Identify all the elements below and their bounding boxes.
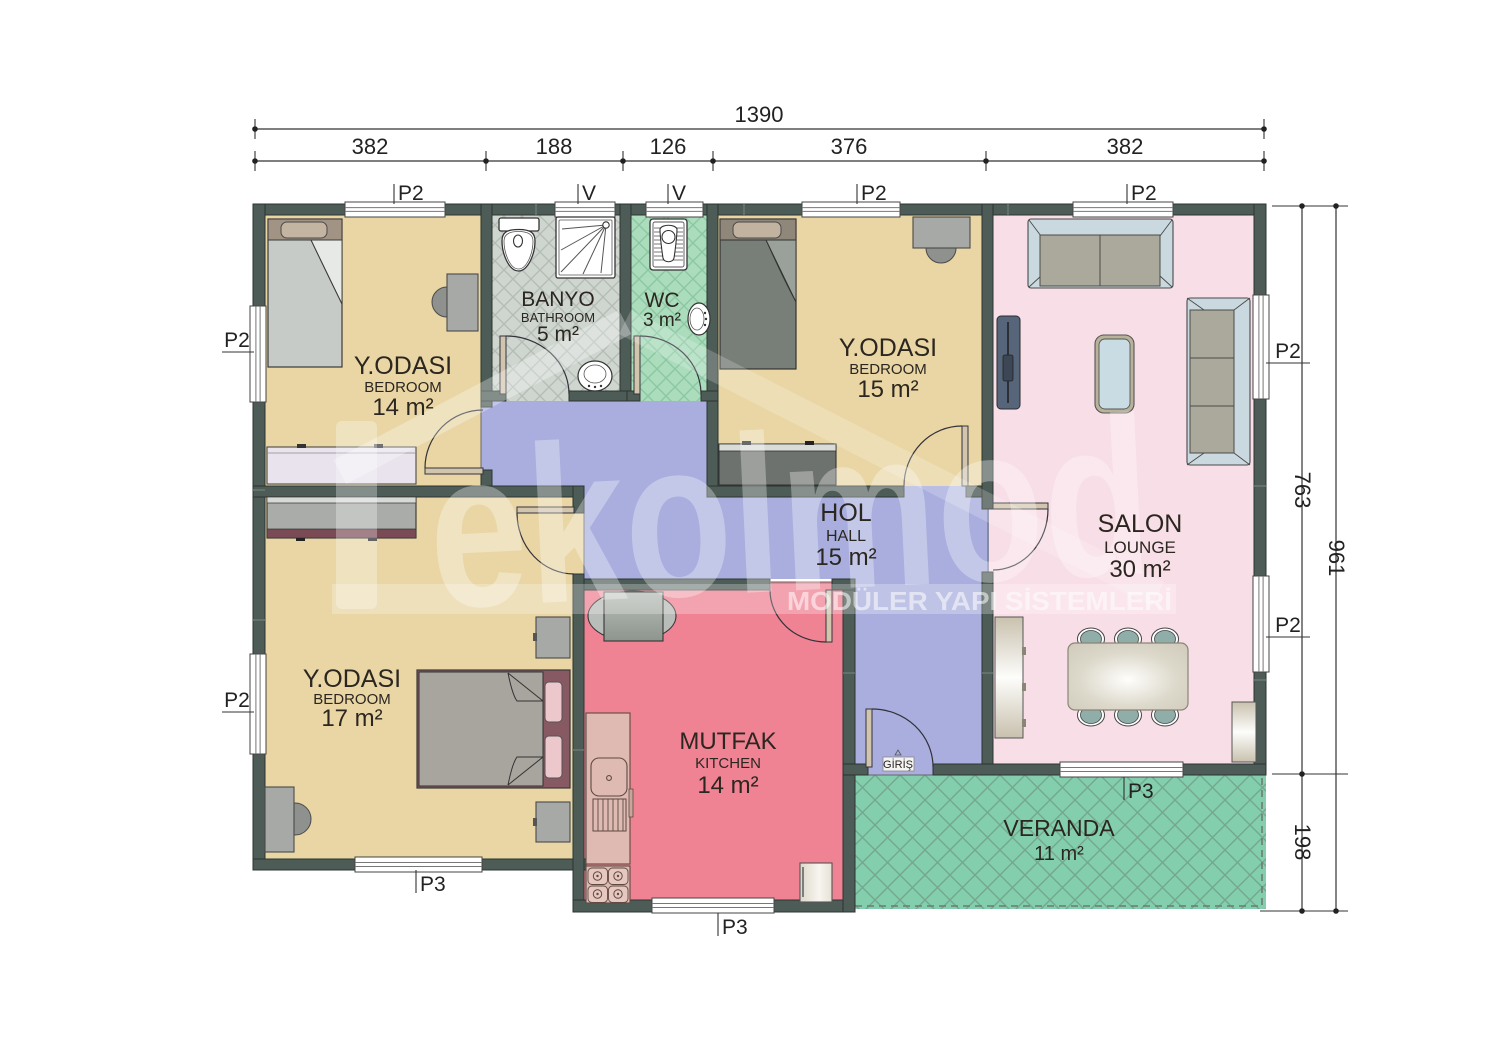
svg-text:WC: WC	[645, 289, 680, 312]
svg-text:HALL: HALL	[826, 528, 866, 545]
svg-text:KITCHEN: KITCHEN	[695, 755, 761, 772]
svg-text:17 m²: 17 m²	[321, 705, 382, 732]
svg-text:LOUNGE: LOUNGE	[1104, 538, 1176, 557]
svg-text:P2: P2	[224, 689, 250, 712]
svg-text:MODÜLER YAPI SİSTEMLERİ: MODÜLER YAPI SİSTEMLERİ	[787, 586, 1172, 616]
svg-text:961: 961	[1324, 540, 1349, 577]
svg-text:14 m²: 14 m²	[372, 394, 433, 421]
svg-text:11 m²: 11 m²	[1034, 843, 1084, 865]
svg-text:P3: P3	[420, 873, 446, 896]
svg-text:3 m²: 3 m²	[643, 310, 681, 331]
svg-text:Y.ODASI: Y.ODASI	[303, 665, 401, 693]
svg-text:P2: P2	[224, 329, 250, 352]
svg-text:376: 376	[831, 134, 868, 159]
svg-text:P2: P2	[1275, 614, 1301, 637]
svg-text:P2: P2	[1131, 182, 1157, 205]
svg-text:15 m²: 15 m²	[857, 376, 918, 403]
svg-text:GİRİŞ: GİRİŞ	[883, 758, 913, 771]
svg-text:763: 763	[1290, 472, 1315, 509]
svg-text:P3: P3	[1128, 780, 1154, 803]
svg-text:V: V	[582, 182, 596, 205]
svg-text:BANYO: BANYO	[521, 288, 595, 311]
svg-text:HOL: HOL	[820, 499, 872, 527]
svg-text:MUTFAK: MUTFAK	[679, 728, 776, 755]
svg-text:SALON: SALON	[1098, 510, 1183, 538]
svg-text:14 m²: 14 m²	[697, 772, 758, 799]
svg-text:V: V	[672, 182, 686, 205]
svg-text:30 m²: 30 m²	[1109, 556, 1170, 583]
svg-text:P2: P2	[398, 182, 424, 205]
svg-text:126: 126	[650, 134, 687, 159]
svg-text:Y.ODASI: Y.ODASI	[839, 334, 937, 362]
svg-text:P3: P3	[722, 916, 748, 939]
svg-text:5 m²: 5 m²	[537, 323, 579, 346]
svg-text:188: 188	[536, 134, 573, 159]
svg-text:15 m²: 15 m²	[815, 544, 876, 571]
svg-text:VERANDA: VERANDA	[1003, 815, 1115, 841]
svg-text:Y.ODASI: Y.ODASI	[354, 352, 452, 380]
svg-text:1390: 1390	[735, 102, 784, 127]
svg-text:382: 382	[1107, 134, 1144, 159]
svg-text:P2: P2	[861, 182, 887, 205]
svg-text:P2: P2	[1275, 340, 1301, 363]
svg-text:382: 382	[352, 134, 389, 159]
svg-text:198: 198	[1290, 824, 1315, 861]
